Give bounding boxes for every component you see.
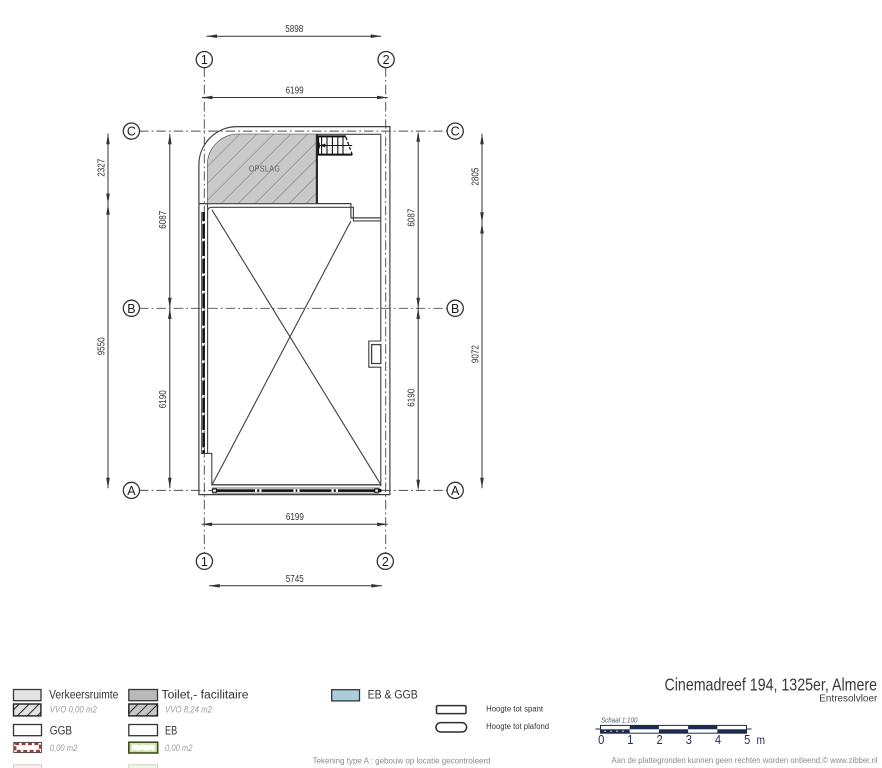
svg-text:1: 1: [627, 733, 633, 747]
svg-text:6190: 6190: [158, 390, 169, 408]
svg-text:3: 3: [686, 733, 692, 747]
svg-text:Toilet,- facilitaire: Toilet,- facilitaire: [162, 689, 249, 701]
svg-text:Hoogte tot plafond: Hoogte tot plafond: [486, 722, 549, 731]
svg-text:2: 2: [657, 733, 663, 747]
svg-text:2: 2: [383, 53, 390, 67]
svg-text:A: A: [127, 484, 136, 498]
svg-text:Schaal 1:100: Schaal 1:100: [601, 717, 638, 724]
svg-text:GGB: GGB: [50, 725, 73, 737]
svg-text:B: B: [127, 302, 135, 316]
svg-text:2327: 2327: [96, 158, 107, 176]
svg-text:C: C: [451, 125, 460, 139]
svg-text:5745: 5745: [286, 574, 304, 585]
svg-text:6199: 6199: [286, 86, 304, 97]
svg-text:Cinemadreef 194, 1325er, Almer: Cinemadreef 194, 1325er, Almere: [665, 675, 878, 695]
svg-text:B: B: [451, 302, 459, 316]
svg-text:EB & GGB: EB & GGB: [368, 689, 418, 701]
svg-text:VVO 8,24 m2: VVO 8,24 m2: [165, 705, 213, 716]
svg-text:1: 1: [201, 53, 208, 67]
svg-text:6199: 6199: [286, 512, 304, 523]
svg-text:2805: 2805: [470, 167, 481, 185]
svg-text:VVO 0,00 m2: VVO 0,00 m2: [50, 705, 98, 716]
svg-text:6087: 6087: [407, 208, 418, 226]
svg-text:9072: 9072: [470, 345, 481, 363]
svg-text:A: A: [451, 484, 460, 498]
svg-text:OPSLAG: OPSLAG: [249, 164, 281, 173]
svg-text:0: 0: [598, 733, 604, 747]
svg-text:Hoogte tot spant: Hoogte tot spant: [486, 705, 544, 714]
svg-text:Tekening type A : gebouw op lo: Tekening type A : gebouw op locatie geco…: [313, 755, 491, 765]
svg-text:4: 4: [715, 733, 721, 747]
svg-text:5898: 5898: [285, 24, 303, 35]
svg-text:1: 1: [201, 555, 208, 569]
svg-text:EB: EB: [165, 725, 177, 737]
svg-text:5: 5: [744, 733, 750, 747]
svg-text:m: m: [757, 733, 766, 747]
svg-text:2: 2: [382, 555, 389, 569]
svg-text:9550: 9550: [96, 337, 107, 355]
svg-text:Verkeersruimte: Verkeersruimte: [49, 689, 118, 701]
svg-text:6087: 6087: [158, 210, 169, 228]
svg-text:6190: 6190: [407, 388, 418, 406]
svg-text:0,00 m2: 0,00 m2: [165, 743, 193, 754]
svg-text:Aan de plattegronden kunnen ge: Aan de plattegronden kunnen geen rechten…: [612, 755, 878, 765]
svg-text:Entresolvloer: Entresolvloer: [819, 693, 878, 704]
svg-text:C: C: [127, 125, 136, 139]
svg-text:0,00 m2: 0,00 m2: [50, 743, 78, 754]
